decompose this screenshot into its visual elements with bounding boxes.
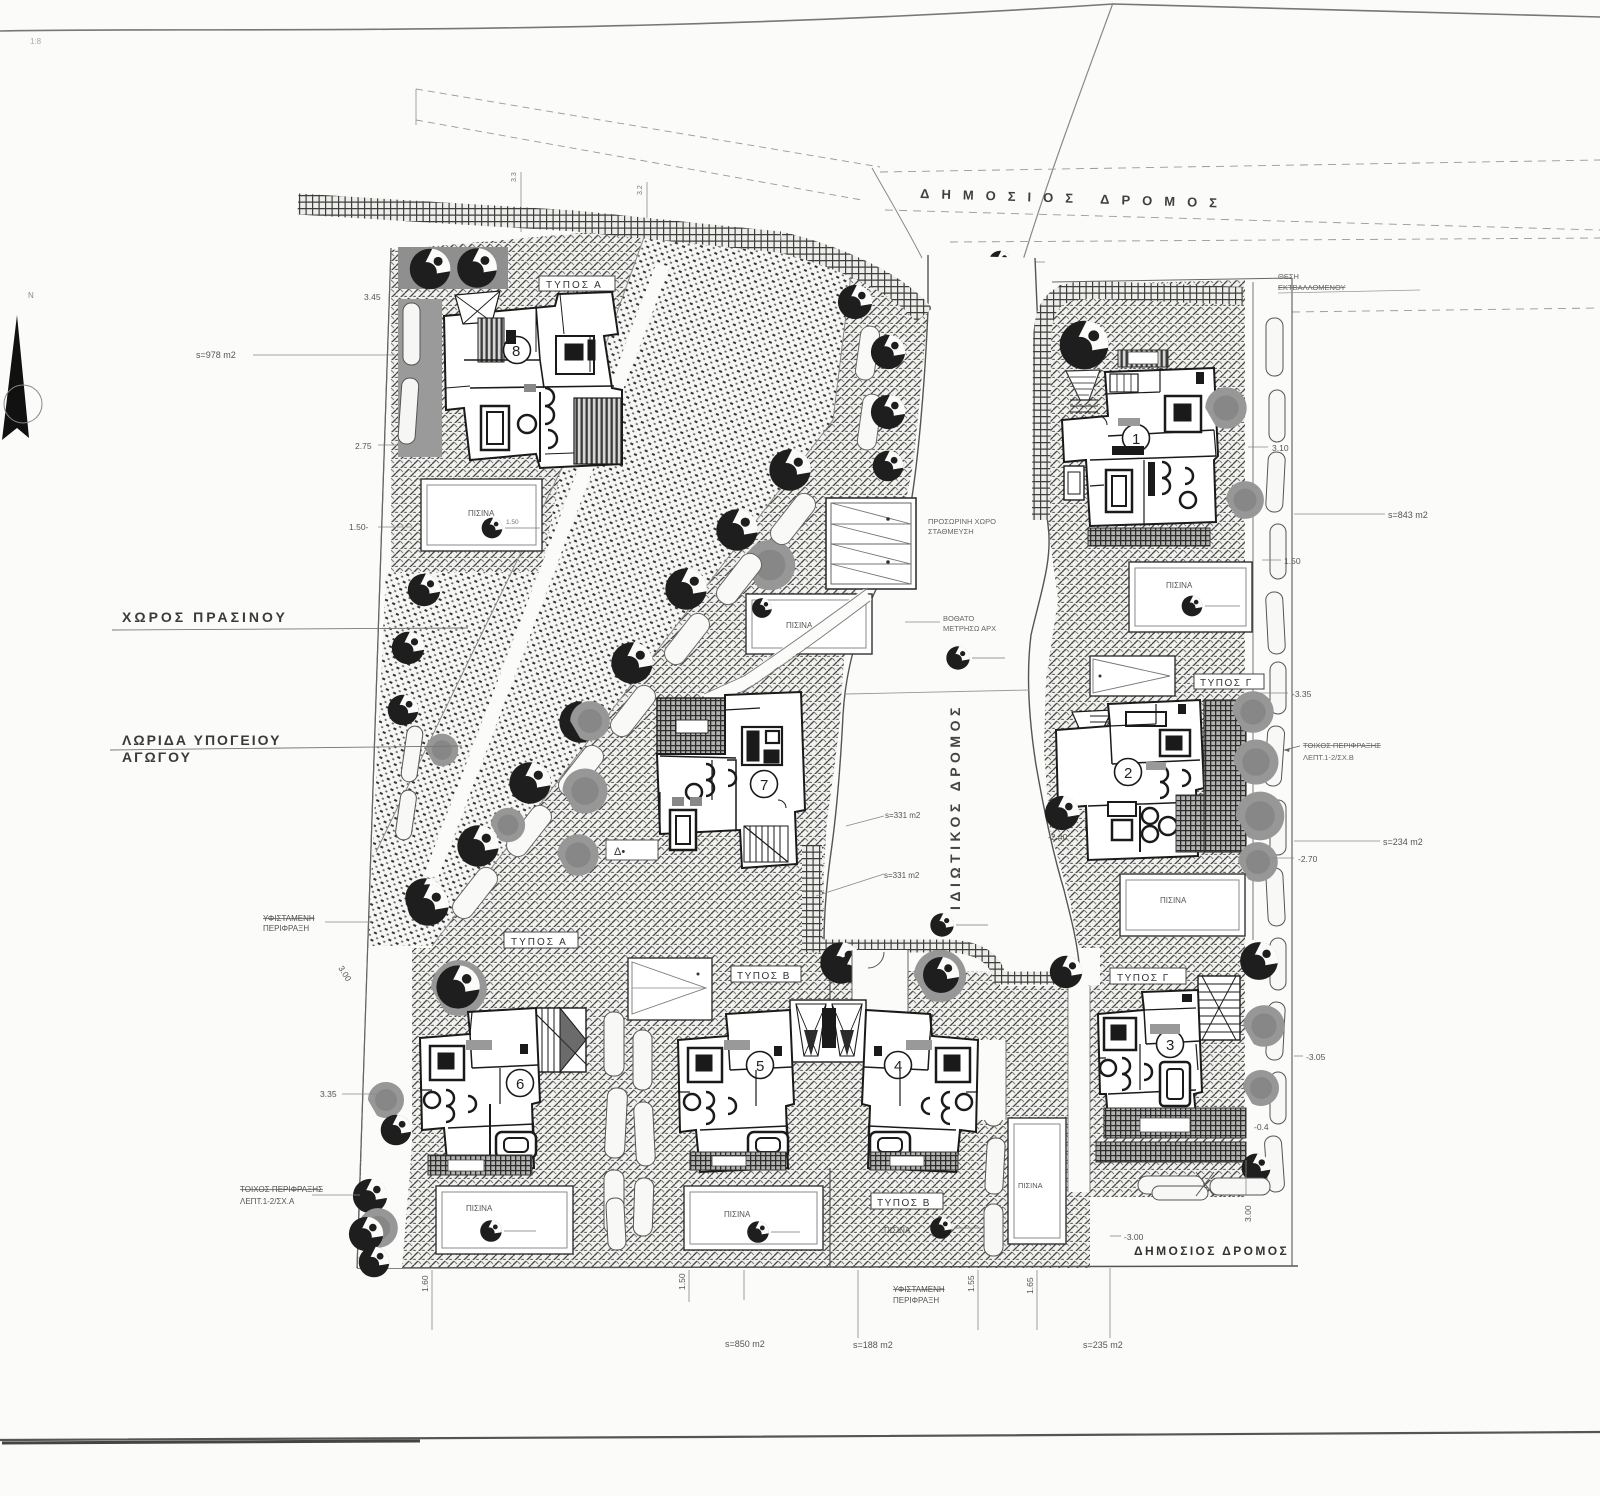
svg-text:ΑΓΩΓΟΥ: ΑΓΩΓΟΥ (122, 749, 192, 765)
svg-text:ΧΩΡΟΣ ΠΡΑΣΙΝΟΥ: ΧΩΡΟΣ ΠΡΑΣΙΝΟΥ (122, 609, 288, 625)
svg-text:1: 1 (1132, 431, 1140, 448)
svg-text:ΤΟΙΧΟΣ ΠΕΡΙΦΡΑΞΗΣ: ΤΟΙΧΟΣ ΠΕΡΙΦΡΑΞΗΣ (240, 1185, 323, 1194)
svg-text:1.60: 1.60 (420, 1275, 430, 1292)
svg-text:ΥΦΙΣΤΑΜΕΝΗ: ΥΦΙΣΤΑΜΕΝΗ (893, 1285, 945, 1294)
svg-text:ΠΙΣΙΝΑ: ΠΙΣΙΝΑ (1160, 896, 1187, 905)
svg-text:s=850 m2: s=850 m2 (725, 1339, 765, 1349)
svg-text:ΤΥΠΟΣ Γ: ΤΥΠΟΣ Γ (1200, 678, 1253, 689)
svg-text:s=188 m2: s=188 m2 (853, 1340, 893, 1350)
svg-text:6: 6 (516, 1076, 524, 1093)
svg-text:-2.40: -2.40 (1048, 832, 1068, 842)
svg-text:ΤΥΠΟΣ Α: ΤΥΠΟΣ Α (546, 280, 603, 291)
svg-text:ΙΔΙΩΤΙΚΟΣ ΔΡΟΜΟΣ: ΙΔΙΩΤΙΚΟΣ ΔΡΟΜΟΣ (947, 703, 963, 910)
svg-text:3.35: 3.35 (320, 1089, 337, 1099)
svg-text:s=235 m2: s=235 m2 (1083, 1340, 1123, 1350)
svg-text:ΛΕΠΤ.1-2/ΣΧ.Α: ΛΕΠΤ.1-2/ΣΧ.Α (240, 1197, 295, 1206)
svg-text:-3.00: -3.00 (1124, 1232, 1144, 1242)
svg-text:s=843 m2: s=843 m2 (1388, 510, 1428, 520)
svg-text:ΠΙΣΙΝΑ: ΠΙΣΙΝΑ (1018, 1181, 1043, 1190)
svg-text:ΠΙΣΙΝΑ: ΠΙΣΙΝΑ (466, 1204, 493, 1213)
svg-text:2.75: 2.75 (355, 441, 372, 451)
svg-text:-3.35: -3.35 (1292, 689, 1312, 699)
svg-text:ΤΥΠΟΣ Γ: ΤΥΠΟΣ Γ (1117, 973, 1170, 984)
svg-text:ΜΕΤΡΗΣΩ ΑΡΧ: ΜΕΤΡΗΣΩ ΑΡΧ (943, 624, 996, 633)
svg-text:ΠΙΣΙΝΑ: ΠΙΣΙΝΑ (884, 1226, 911, 1235)
svg-text:1.50: 1.50 (506, 519, 519, 526)
svg-text:ΒΟΘΑΤΟ: ΒΟΘΑΤΟ (943, 614, 974, 623)
svg-text:2: 2 (1124, 765, 1132, 782)
svg-text:ΠΕΡΙΦΡΑΞΗ: ΠΕΡΙΦΡΑΞΗ (893, 1296, 939, 1305)
svg-text:5: 5 (756, 1058, 764, 1075)
svg-text:3.45: 3.45 (364, 292, 381, 302)
svg-text:ΕΚΤΒΑΛΛΟΜΕΝΟΥ: ΕΚΤΒΑΛΛΟΜΕΝΟΥ (1278, 283, 1346, 292)
svg-text:7: 7 (760, 777, 768, 794)
svg-text:3.00: 3.00 (1243, 1205, 1253, 1222)
svg-text:-3.05: -3.05 (1306, 1052, 1326, 1062)
svg-text:ΠΙΣΙΝΑ: ΠΙΣΙΝΑ (724, 1210, 751, 1219)
svg-text:s=978 m2: s=978 m2 (196, 350, 236, 360)
svg-text:ΠΕΡΙΦΡΑΞΗ: ΠΕΡΙΦΡΑΞΗ (263, 924, 309, 933)
svg-text:s=234 m2: s=234 m2 (1383, 837, 1423, 847)
svg-text:ΣΤΑΘΜΕΥΣΗ: ΣΤΑΘΜΕΥΣΗ (928, 527, 974, 536)
svg-text:-0.4: -0.4 (1254, 1122, 1269, 1132)
svg-text:ΤΥΠΟΣ Β: ΤΥΠΟΣ Β (737, 971, 791, 982)
svg-text:3.2: 3.2 (637, 185, 644, 195)
svg-text:Δ•: Δ• (614, 846, 625, 858)
svg-text:ΤΥΠΟΣ Α: ΤΥΠΟΣ Α (511, 937, 568, 948)
svg-text:ΤΥΠΟΣ Β: ΤΥΠΟΣ Β (877, 1198, 931, 1209)
svg-text:ΤΟΙΧΟΣ ΠΕΡΙΦΡΑΞΗΣ: ΤΟΙΧΟΣ ΠΕΡΙΦΡΑΞΗΣ (1303, 741, 1381, 750)
svg-text:8: 8 (512, 343, 520, 360)
svg-text:1.50: 1.50 (1284, 556, 1301, 566)
svg-text:s=331 m2: s=331 m2 (884, 871, 920, 880)
svg-text:ΥΦΙΣΤΑΜΕΝΗ: ΥΦΙΣΤΑΜΕΝΗ (263, 914, 315, 923)
svg-text:s=331 m2: s=331 m2 (885, 811, 921, 820)
svg-text:ΔΗΜΟΣΙΟΣ ΔΡΟΜΟΣ: ΔΗΜΟΣΙΟΣ ΔΡΟΜΟΣ (1134, 1244, 1289, 1258)
svg-text:4: 4 (894, 1058, 902, 1075)
svg-text:ΠΡΟΣΩΡΙΝΗ ΧΩΡΟ: ΠΡΟΣΩΡΙΝΗ ΧΩΡΟ (928, 517, 996, 526)
svg-text:-2.70: -2.70 (1298, 854, 1318, 864)
svg-text:N: N (28, 291, 34, 300)
svg-text:3.3: 3.3 (511, 172, 518, 182)
svg-text:1.50: 1.50 (677, 1273, 687, 1290)
svg-text:1:8: 1:8 (30, 37, 42, 46)
svg-text:ΠΙΣΙΝΑ: ΠΙΣΙΝΑ (1166, 581, 1193, 590)
svg-text:1.50-: 1.50- (349, 522, 369, 532)
svg-text:ΛΕΠΤ.1-2/ΣΧ.Β: ΛΕΠΤ.1-2/ΣΧ.Β (1303, 753, 1354, 762)
svg-text:ΘΕΣΗ: ΘΕΣΗ (1278, 272, 1299, 281)
svg-text:ΠΙΣΙΝΑ: ΠΙΣΙΝΑ (786, 621, 813, 630)
svg-text:ΛΩΡΙΔΑ ΥΠΟΓΕΙΟΥ: ΛΩΡΙΔΑ ΥΠΟΓΕΙΟΥ (122, 732, 281, 748)
svg-text:3: 3 (1166, 1037, 1174, 1054)
svg-text:1.65: 1.65 (1025, 1277, 1035, 1294)
svg-text:ΠΙΣΙΝΑ: ΠΙΣΙΝΑ (468, 509, 495, 518)
svg-text:3.10: 3.10 (1272, 443, 1289, 453)
svg-text:1.55: 1.55 (966, 1275, 976, 1292)
